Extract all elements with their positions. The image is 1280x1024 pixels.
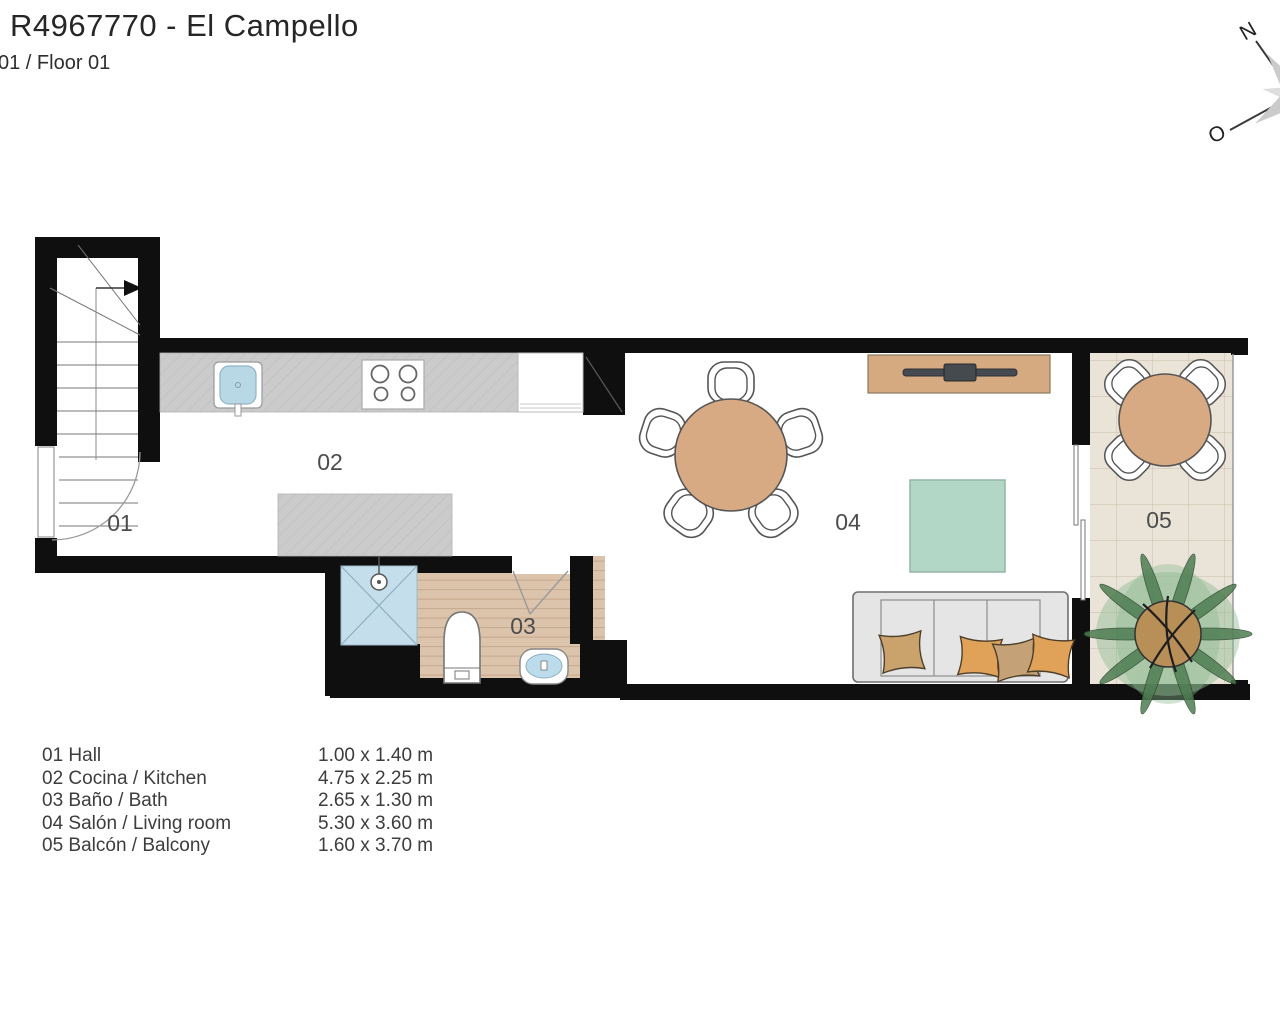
legend-label: 01 Hall [42, 745, 318, 768]
legend-size: 4.75 x 2.25 m [318, 768, 498, 791]
legend-row-bath: 03 Baño / Bath 2.65 x 1.30 m [42, 790, 498, 813]
room-label-kitchen: 02 [317, 449, 343, 475]
legend-row-kitchen: 02 Cocina / Kitchen 4.75 x 2.25 m [42, 768, 498, 791]
legend-size: 1.60 x 3.70 m [318, 835, 498, 858]
sliding-door [1074, 445, 1085, 600]
legend-size: 2.65 x 1.30 m [318, 790, 498, 813]
compass-west-label: O [1205, 121, 1230, 149]
tv-console [868, 355, 1050, 393]
coffee-table [910, 480, 1005, 572]
room-label-hall: 01 [107, 510, 133, 536]
kitchen-sink [214, 362, 262, 416]
legend-row-balcony: 05 Balcón / Balcony 1.60 x 3.70 m [42, 835, 498, 858]
toilet [444, 612, 480, 683]
kitchen-island [278, 494, 452, 556]
floorplan-drawing: 01 02 03 04 05 N O [0, 0, 1280, 1024]
legend-label: 02 Cocina / Kitchen [42, 768, 318, 791]
room-label-bath: 03 [510, 613, 536, 639]
shower [341, 556, 417, 645]
dining-set [635, 362, 826, 544]
dining-table [675, 399, 787, 511]
cooktop [362, 360, 424, 409]
balcony-table [1119, 374, 1211, 466]
legend-label: 05 Balcón / Balcony [42, 835, 318, 858]
bathroom-basin [520, 649, 568, 684]
legend-size: 5.30 x 3.60 m [318, 813, 498, 836]
legend-row-hall: 01 Hall 1.00 x 1.40 m [42, 745, 498, 768]
room-legend: 01 Hall 1.00 x 1.40 m 02 Cocina / Kitche… [42, 745, 498, 858]
legend-label: 04 Salón / Living room [42, 813, 318, 836]
compass-icon: N O [1205, 18, 1280, 165]
sofa [853, 592, 1074, 682]
legend-row-livingroom: 04 Salón / Living room 5.30 x 3.60 m [42, 813, 498, 836]
room-label-livingroom: 04 [835, 509, 861, 535]
floorplan-page: R4967770 - El Campello 01 / Floor 01 [0, 0, 1280, 1024]
legend-size: 1.00 x 1.40 m [318, 745, 498, 768]
legend-label: 03 Baño / Bath [42, 790, 318, 813]
balcony-table-set [1098, 353, 1231, 486]
room-label-balcony: 05 [1146, 507, 1172, 533]
